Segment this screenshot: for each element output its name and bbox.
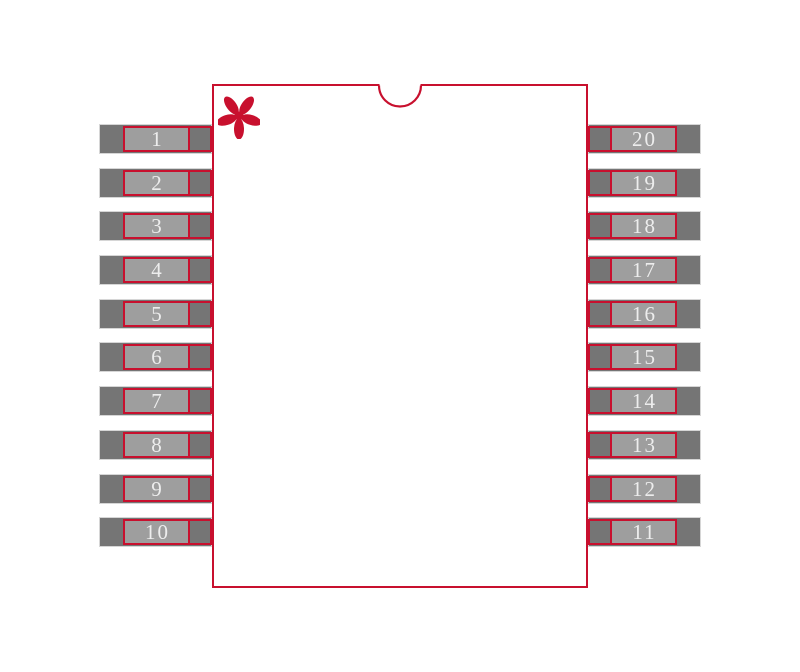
pad-land-stub xyxy=(590,521,612,543)
pad-land: 1 xyxy=(123,126,212,152)
pin-number: 1 xyxy=(149,129,164,150)
pad-land: 11 xyxy=(588,519,677,545)
pad-land: 10 xyxy=(123,519,212,545)
pad-land-stub xyxy=(188,215,210,237)
pad-land: 7 xyxy=(123,388,212,414)
footprint-diagram: 1 2 3 4 5 6 7 8 9 10 20 19 18 17 16 15 1… xyxy=(0,0,800,672)
pad-pin-17: 17 xyxy=(588,255,701,285)
pad-land: 14 xyxy=(588,388,677,414)
pad-land-main: 14 xyxy=(612,390,675,412)
pad-land-stub xyxy=(590,259,612,281)
orientation-notch-icon xyxy=(377,84,423,109)
pad-land-main: 3 xyxy=(125,215,188,237)
pad-land-stub xyxy=(590,303,612,325)
pad-land-stub xyxy=(188,172,210,194)
pin-number: 15 xyxy=(630,347,657,368)
pin-number: 19 xyxy=(630,173,657,194)
pad-land-main: 12 xyxy=(612,478,675,500)
pad-pin-7: 7 xyxy=(99,386,212,416)
pad-pin-12: 12 xyxy=(588,474,701,504)
pad-land: 15 xyxy=(588,344,677,370)
pin-number: 3 xyxy=(149,216,164,237)
pad-land-stub xyxy=(188,478,210,500)
pin-number: 2 xyxy=(149,173,164,194)
pin-number: 17 xyxy=(630,260,657,281)
pin-number: 9 xyxy=(149,479,164,500)
pin-number: 16 xyxy=(630,304,657,325)
pad-land-main: 13 xyxy=(612,434,675,456)
pad-pin-20: 20 xyxy=(588,124,701,154)
pad-land-main: 16 xyxy=(612,303,675,325)
pad-land-stub xyxy=(590,172,612,194)
pad-pin-2: 2 xyxy=(99,168,212,198)
pad-land-main: 19 xyxy=(612,172,675,194)
pad-pin-1: 1 xyxy=(99,124,212,154)
pad-land-main: 9 xyxy=(125,478,188,500)
pad-land: 6 xyxy=(123,344,212,370)
pad-land: 2 xyxy=(123,170,212,196)
pin-number: 20 xyxy=(630,129,657,150)
pad-pin-11: 11 xyxy=(588,517,701,547)
pad-land-main: 8 xyxy=(125,434,188,456)
pad-pin-6: 6 xyxy=(99,342,212,372)
pad-land-main: 15 xyxy=(612,346,675,368)
pad-pin-3: 3 xyxy=(99,211,212,241)
pad-land-main: 20 xyxy=(612,128,675,150)
pad-land-stub xyxy=(188,390,210,412)
pad-pin-15: 15 xyxy=(588,342,701,372)
pin-number: 12 xyxy=(630,479,657,500)
pin1-asterisk-icon xyxy=(218,93,260,139)
pad-pin-16: 16 xyxy=(588,299,701,329)
pad-pin-18: 18 xyxy=(588,211,701,241)
pad-land-stub xyxy=(590,434,612,456)
pad-land-stub xyxy=(188,346,210,368)
package-body-outline xyxy=(212,84,588,588)
pad-land: 13 xyxy=(588,432,677,458)
pad-land: 12 xyxy=(588,476,677,502)
pin-number: 14 xyxy=(630,391,657,412)
pad-pin-4: 4 xyxy=(99,255,212,285)
pin-number: 18 xyxy=(630,216,657,237)
pad-land: 19 xyxy=(588,170,677,196)
pad-pin-10: 10 xyxy=(99,517,212,547)
pin-number: 6 xyxy=(149,347,164,368)
pad-pin-19: 19 xyxy=(588,168,701,198)
pad-land-main: 11 xyxy=(612,521,675,543)
pad-land-stub xyxy=(590,478,612,500)
pad-land: 5 xyxy=(123,301,212,327)
pad-land-stub xyxy=(188,259,210,281)
pad-land: 16 xyxy=(588,301,677,327)
pad-pin-13: 13 xyxy=(588,430,701,460)
pad-land-main: 1 xyxy=(125,128,188,150)
pad-land: 4 xyxy=(123,257,212,283)
pad-land: 8 xyxy=(123,432,212,458)
pad-land: 3 xyxy=(123,213,212,239)
pad-land-stub xyxy=(590,128,612,150)
pad-land-stub xyxy=(188,303,210,325)
pad-pin-5: 5 xyxy=(99,299,212,329)
pad-land-main: 6 xyxy=(125,346,188,368)
pin-number: 13 xyxy=(630,435,657,456)
pad-land: 17 xyxy=(588,257,677,283)
pin-number: 11 xyxy=(630,522,656,543)
pad-land-stub xyxy=(590,390,612,412)
pad-pin-9: 9 xyxy=(99,474,212,504)
pin-number: 4 xyxy=(149,260,164,281)
pad-land-main: 7 xyxy=(125,390,188,412)
pad-land: 18 xyxy=(588,213,677,239)
pin-number: 8 xyxy=(149,435,164,456)
pad-land-stub xyxy=(188,128,210,150)
pad-land-main: 17 xyxy=(612,259,675,281)
pin-number: 5 xyxy=(149,304,164,325)
pad-land-stub xyxy=(590,346,612,368)
pad-land-main: 2 xyxy=(125,172,188,194)
pad-land-main: 10 xyxy=(125,521,188,543)
pad-land-stub xyxy=(590,215,612,237)
pad-land-stub xyxy=(188,521,210,543)
pad-pin-8: 8 xyxy=(99,430,212,460)
pad-land-main: 5 xyxy=(125,303,188,325)
pin-number: 7 xyxy=(149,391,164,412)
pad-land-stub xyxy=(188,434,210,456)
pad-land: 9 xyxy=(123,476,212,502)
pad-land-main: 18 xyxy=(612,215,675,237)
pad-land: 20 xyxy=(588,126,677,152)
pad-pin-14: 14 xyxy=(588,386,701,416)
pad-land-main: 4 xyxy=(125,259,188,281)
pin-number: 10 xyxy=(143,522,170,543)
